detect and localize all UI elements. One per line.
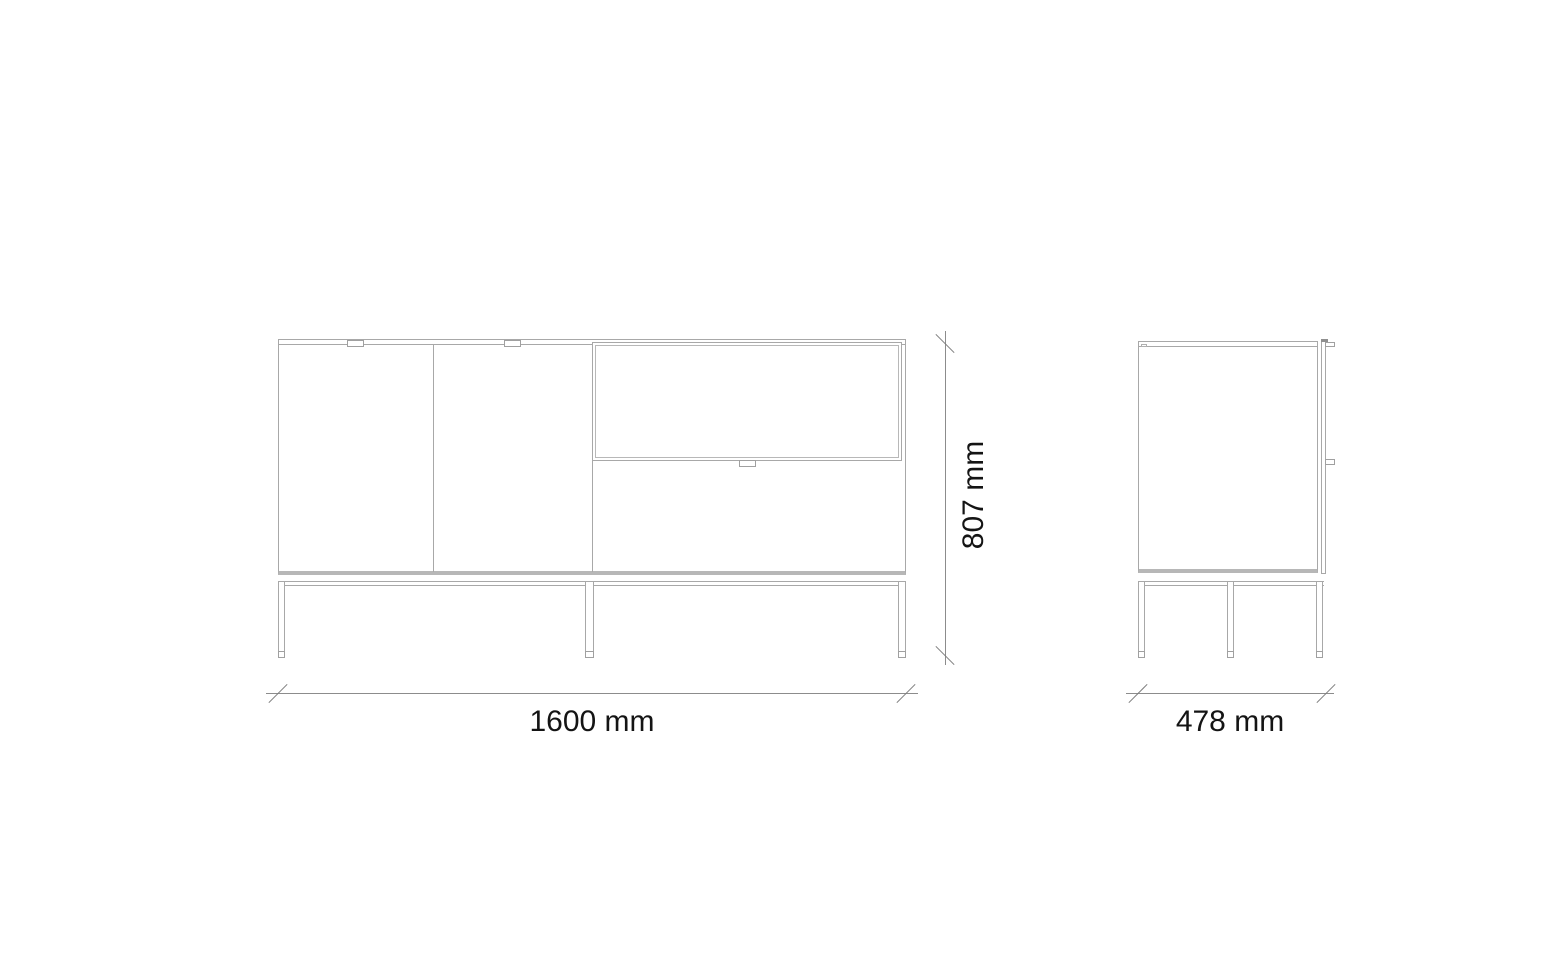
depth-dimension-label: 478 mm — [1080, 706, 1380, 738]
side-leg-back — [1316, 581, 1323, 652]
front-flap-inner-frame — [595, 345, 899, 458]
drawing-canvas: 1600 mm 807 mm 478 mm — [0, 0, 1565, 980]
side-foot-back — [1316, 651, 1323, 658]
front-leg-right — [898, 581, 906, 652]
side-leg-middle — [1227, 581, 1234, 652]
side-door-panel-edge — [1321, 340, 1326, 574]
side-foot-middle — [1227, 651, 1234, 658]
front-middle-door-handle — [504, 340, 521, 347]
front-leg-middle — [585, 581, 594, 652]
front-foot-left — [278, 651, 285, 658]
front-foot-middle — [585, 651, 594, 658]
front-leg-left — [278, 581, 285, 652]
front-foot-right — [898, 651, 906, 658]
width-dimension-label: 1600 mm — [442, 706, 742, 738]
side-hinge-mark — [1141, 344, 1147, 347]
side-top-handle — [1325, 342, 1335, 347]
width-dimension-line — [266, 693, 918, 694]
front-door-divider-1 — [433, 345, 434, 572]
side-top-edge — [1138, 341, 1318, 347]
depth-dimension-line — [1126, 693, 1334, 694]
front-left-door-handle — [347, 340, 364, 347]
side-leg-front — [1138, 581, 1145, 652]
side-carcass-outline — [1138, 341, 1318, 573]
height-dimension-label: 807 mm — [958, 345, 990, 645]
front-flap-panel — [592, 342, 902, 461]
height-dimension-line — [945, 331, 946, 665]
side-middle-handle — [1325, 459, 1335, 465]
front-drawer-handle — [739, 460, 756, 467]
side-foot-front — [1138, 651, 1145, 658]
